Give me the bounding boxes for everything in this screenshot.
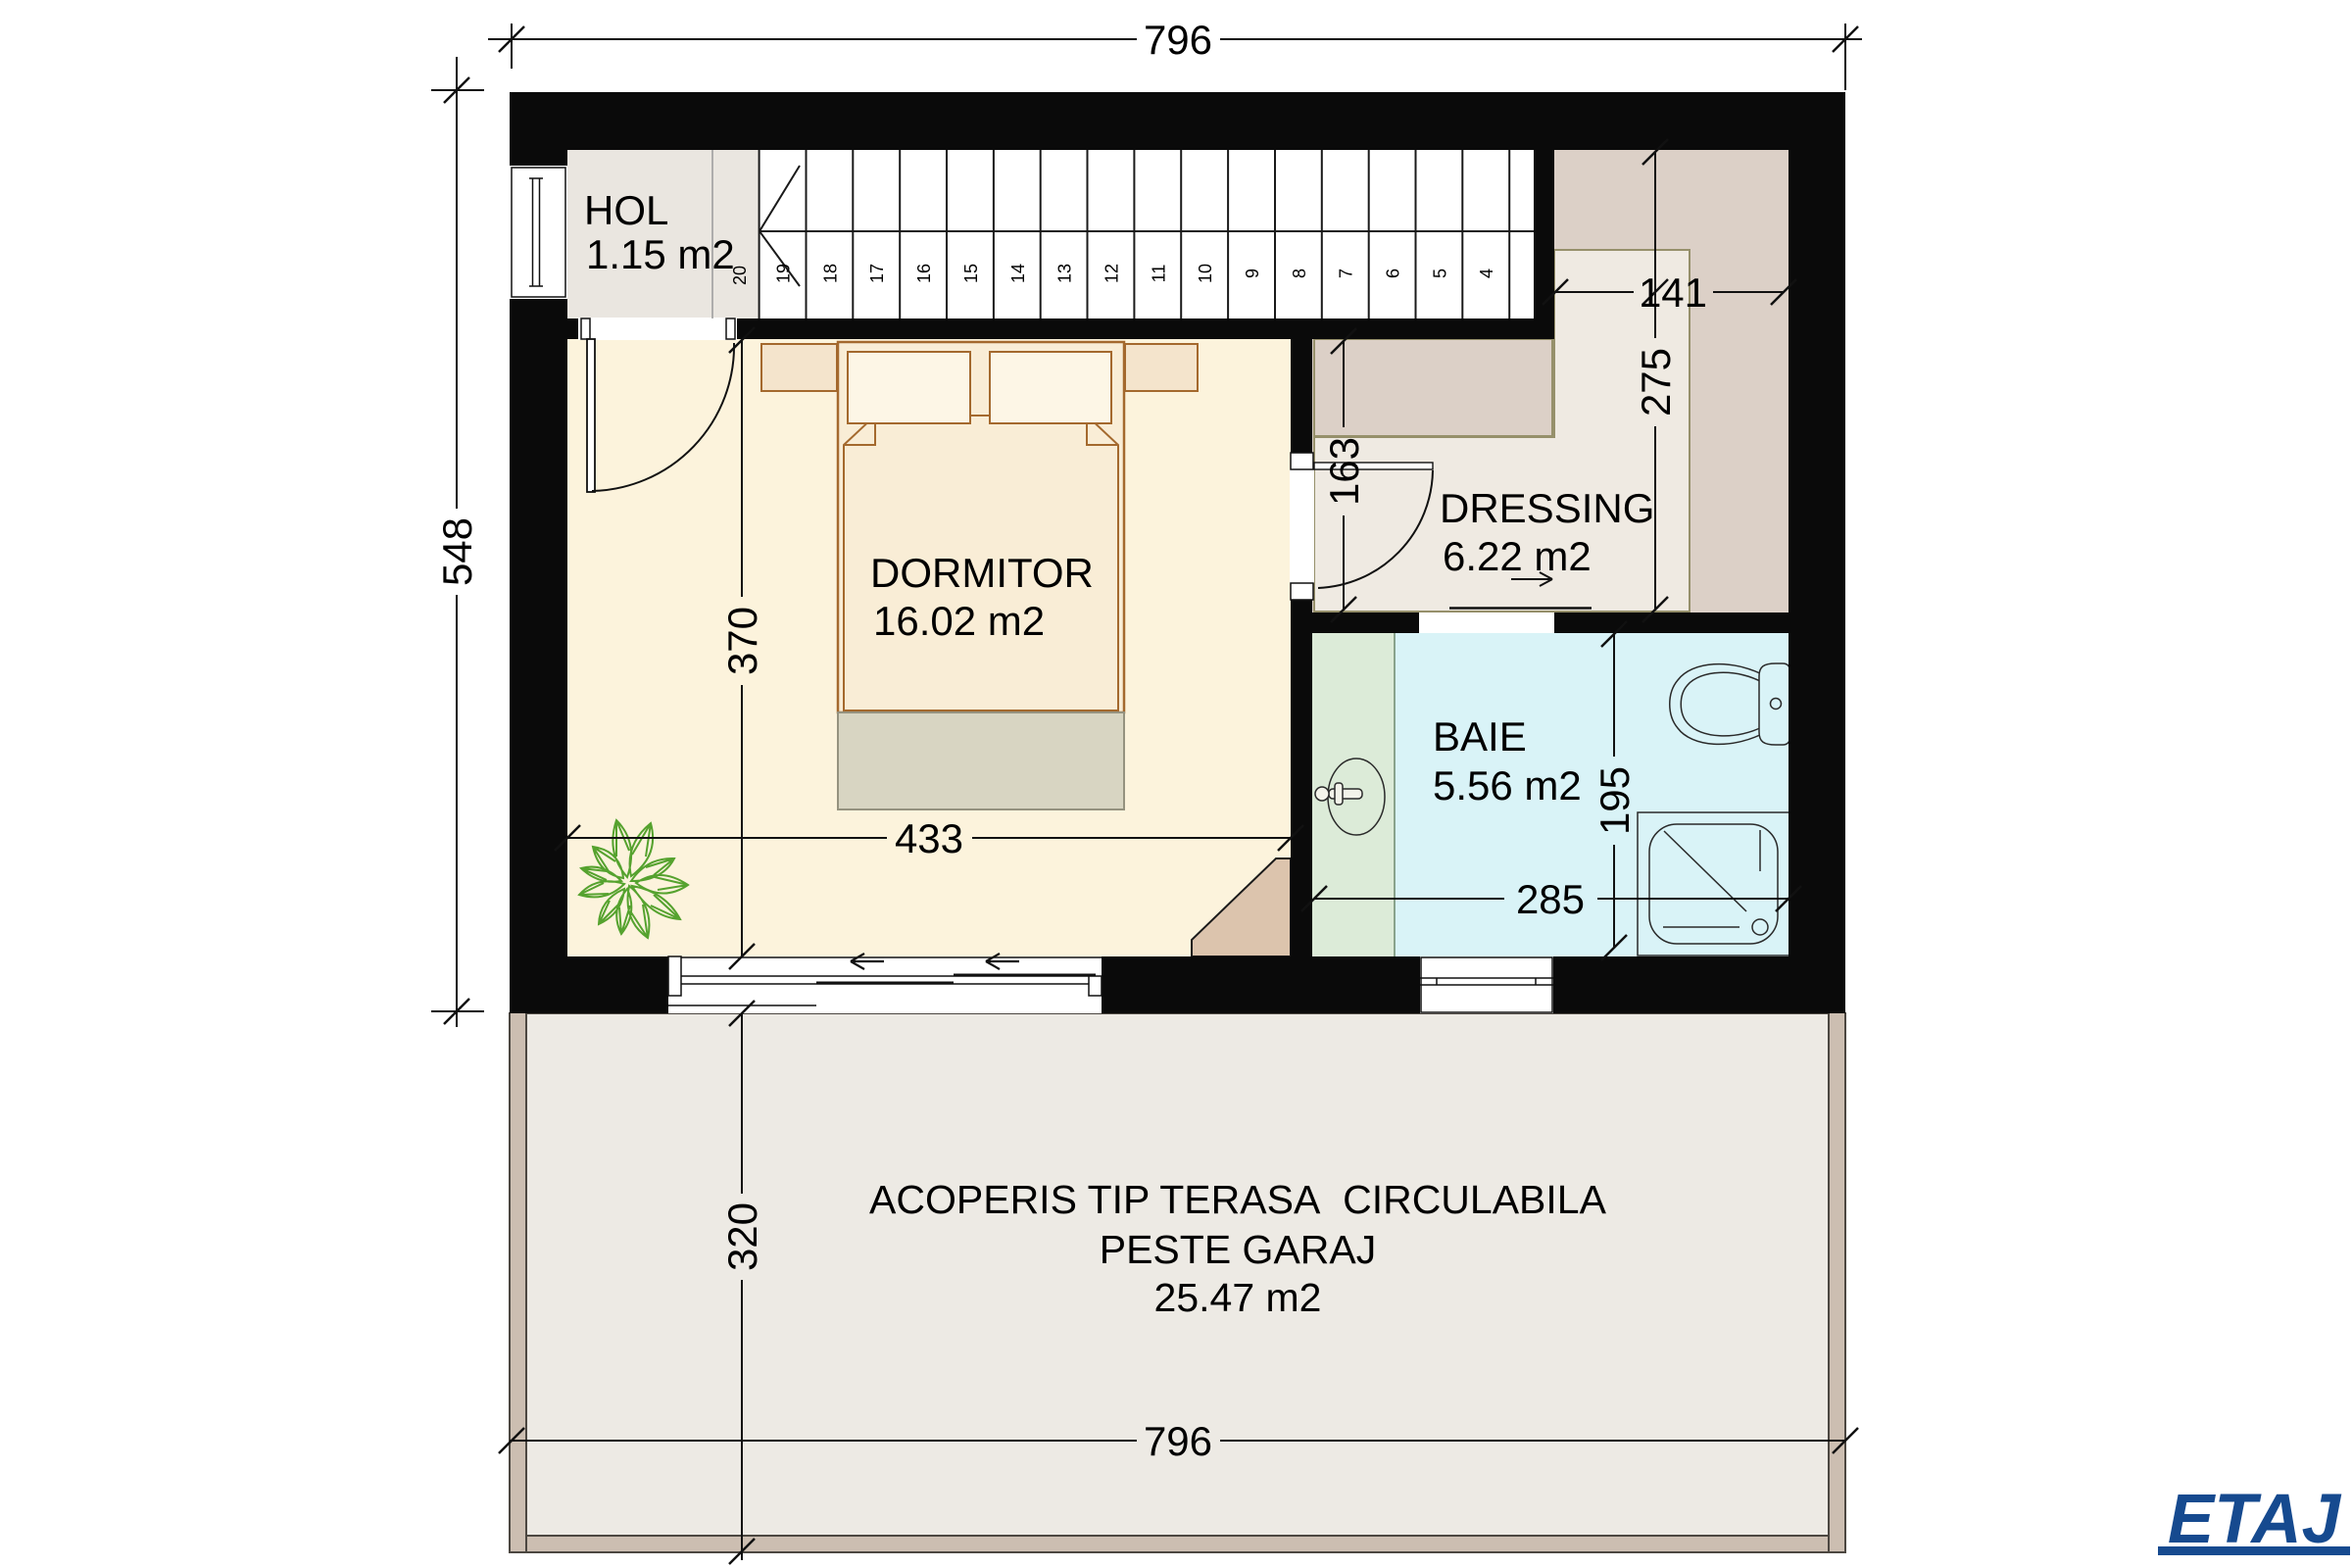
svg-text:275: 275	[1633, 348, 1679, 416]
svg-text:16: 16	[914, 264, 934, 283]
svg-text:14: 14	[1008, 264, 1028, 283]
svg-text:ACOPERIS TIP TERASA CIRCULABI: ACOPERIS TIP TERASA CIRCULABILA	[869, 1177, 1607, 1222]
svg-text:5.56 m2: 5.56 m2	[1433, 762, 1582, 808]
svg-text:15: 15	[961, 264, 981, 283]
svg-text:1.15 m2: 1.15 m2	[586, 231, 735, 277]
svg-text:PESTE GARAJ: PESTE GARAJ	[1100, 1227, 1377, 1272]
svg-text:6: 6	[1384, 269, 1403, 278]
svg-text:17: 17	[867, 264, 887, 283]
svg-text:7: 7	[1337, 269, 1356, 278]
svg-text:DORMITOR: DORMITOR	[870, 550, 1094, 596]
svg-text:DRESSING: DRESSING	[1440, 485, 1654, 531]
svg-text:285: 285	[1516, 876, 1585, 922]
svg-text:8: 8	[1290, 269, 1309, 278]
svg-text:433: 433	[895, 815, 963, 861]
svg-text:370: 370	[719, 607, 765, 675]
svg-text:18: 18	[820, 264, 840, 283]
svg-text:9: 9	[1243, 269, 1262, 278]
svg-text:13: 13	[1055, 264, 1075, 283]
svg-text:16.02 m2: 16.02 m2	[873, 598, 1045, 644]
svg-text:796: 796	[1144, 1418, 1212, 1464]
svg-text:5: 5	[1430, 269, 1449, 278]
svg-text:4: 4	[1477, 269, 1496, 278]
svg-text:141: 141	[1639, 269, 1707, 316]
svg-text:12: 12	[1102, 264, 1122, 283]
svg-text:195: 195	[1592, 766, 1638, 835]
svg-text:320: 320	[719, 1202, 765, 1271]
svg-text:25.47 m2: 25.47 m2	[1154, 1275, 1322, 1320]
svg-text:10: 10	[1196, 264, 1215, 283]
svg-text:19: 19	[774, 264, 794, 283]
svg-text:163: 163	[1321, 437, 1367, 506]
svg-text:796: 796	[1144, 17, 1212, 63]
svg-text:11: 11	[1149, 265, 1168, 283]
svg-text:6.22 m2: 6.22 m2	[1443, 533, 1592, 579]
svg-text:548: 548	[434, 517, 480, 586]
svg-text:BAIE: BAIE	[1433, 713, 1527, 759]
svg-text:HOL: HOL	[584, 187, 668, 233]
